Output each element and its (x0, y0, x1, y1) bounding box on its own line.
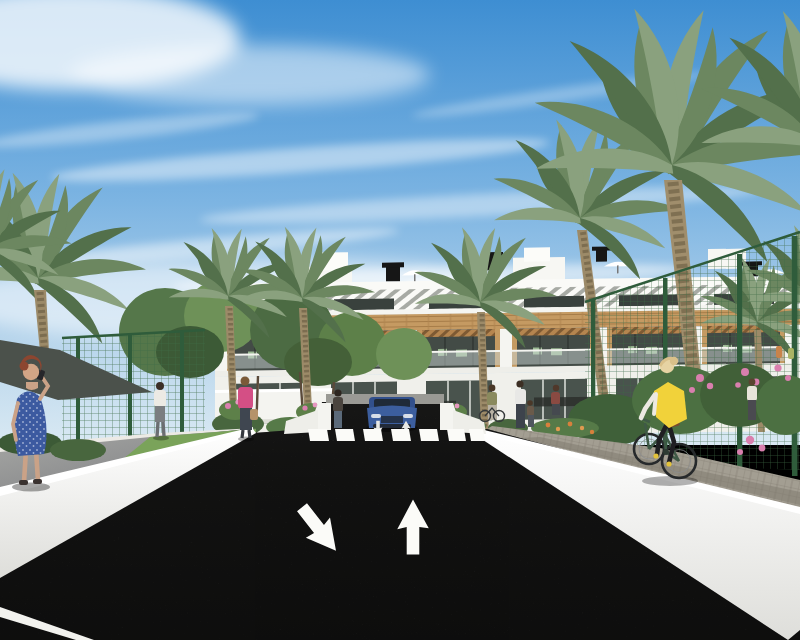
blue-car (367, 397, 417, 428)
scene-canvas (0, 0, 800, 640)
render-viewport (0, 0, 800, 640)
